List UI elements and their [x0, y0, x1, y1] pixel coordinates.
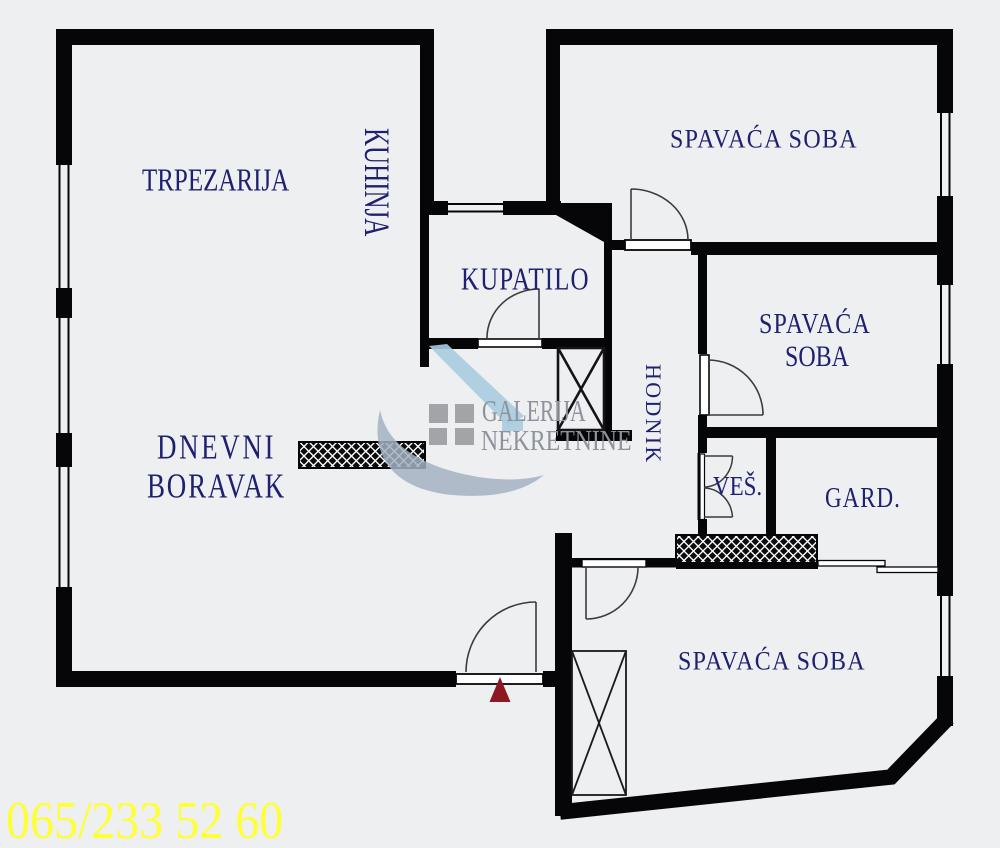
- svg-text:DNEVNI: DNEVNI: [157, 427, 276, 466]
- svg-text:TRPEZARIJA: TRPEZARIJA: [142, 164, 290, 198]
- svg-text:VEŠ.: VEŠ.: [713, 471, 762, 501]
- svg-text:SPAVAĆA SOBA: SPAVAĆA SOBA: [678, 646, 866, 675]
- svg-text:KUHINJA: KUHINJA: [357, 128, 398, 237]
- svg-text:KUPATILO: KUPATILO: [461, 263, 590, 297]
- svg-text:065/233 52 60: 065/233 52 60: [6, 791, 283, 848]
- svg-text:BORAVAK: BORAVAK: [147, 466, 286, 505]
- svg-text:NEKRETNINE: NEKRETNINE: [481, 424, 631, 457]
- svg-text:HODNIK: HODNIK: [641, 364, 666, 465]
- svg-text:SPAVAĆA: SPAVAĆA: [759, 307, 871, 340]
- svg-text:SOBA: SOBA: [785, 339, 849, 372]
- svg-text:SPAVAĆA SOBA: SPAVAĆA SOBA: [670, 124, 858, 153]
- svg-text:GARD.: GARD.: [825, 482, 901, 514]
- svg-text:GALERIJA: GALERIJA: [482, 393, 586, 428]
